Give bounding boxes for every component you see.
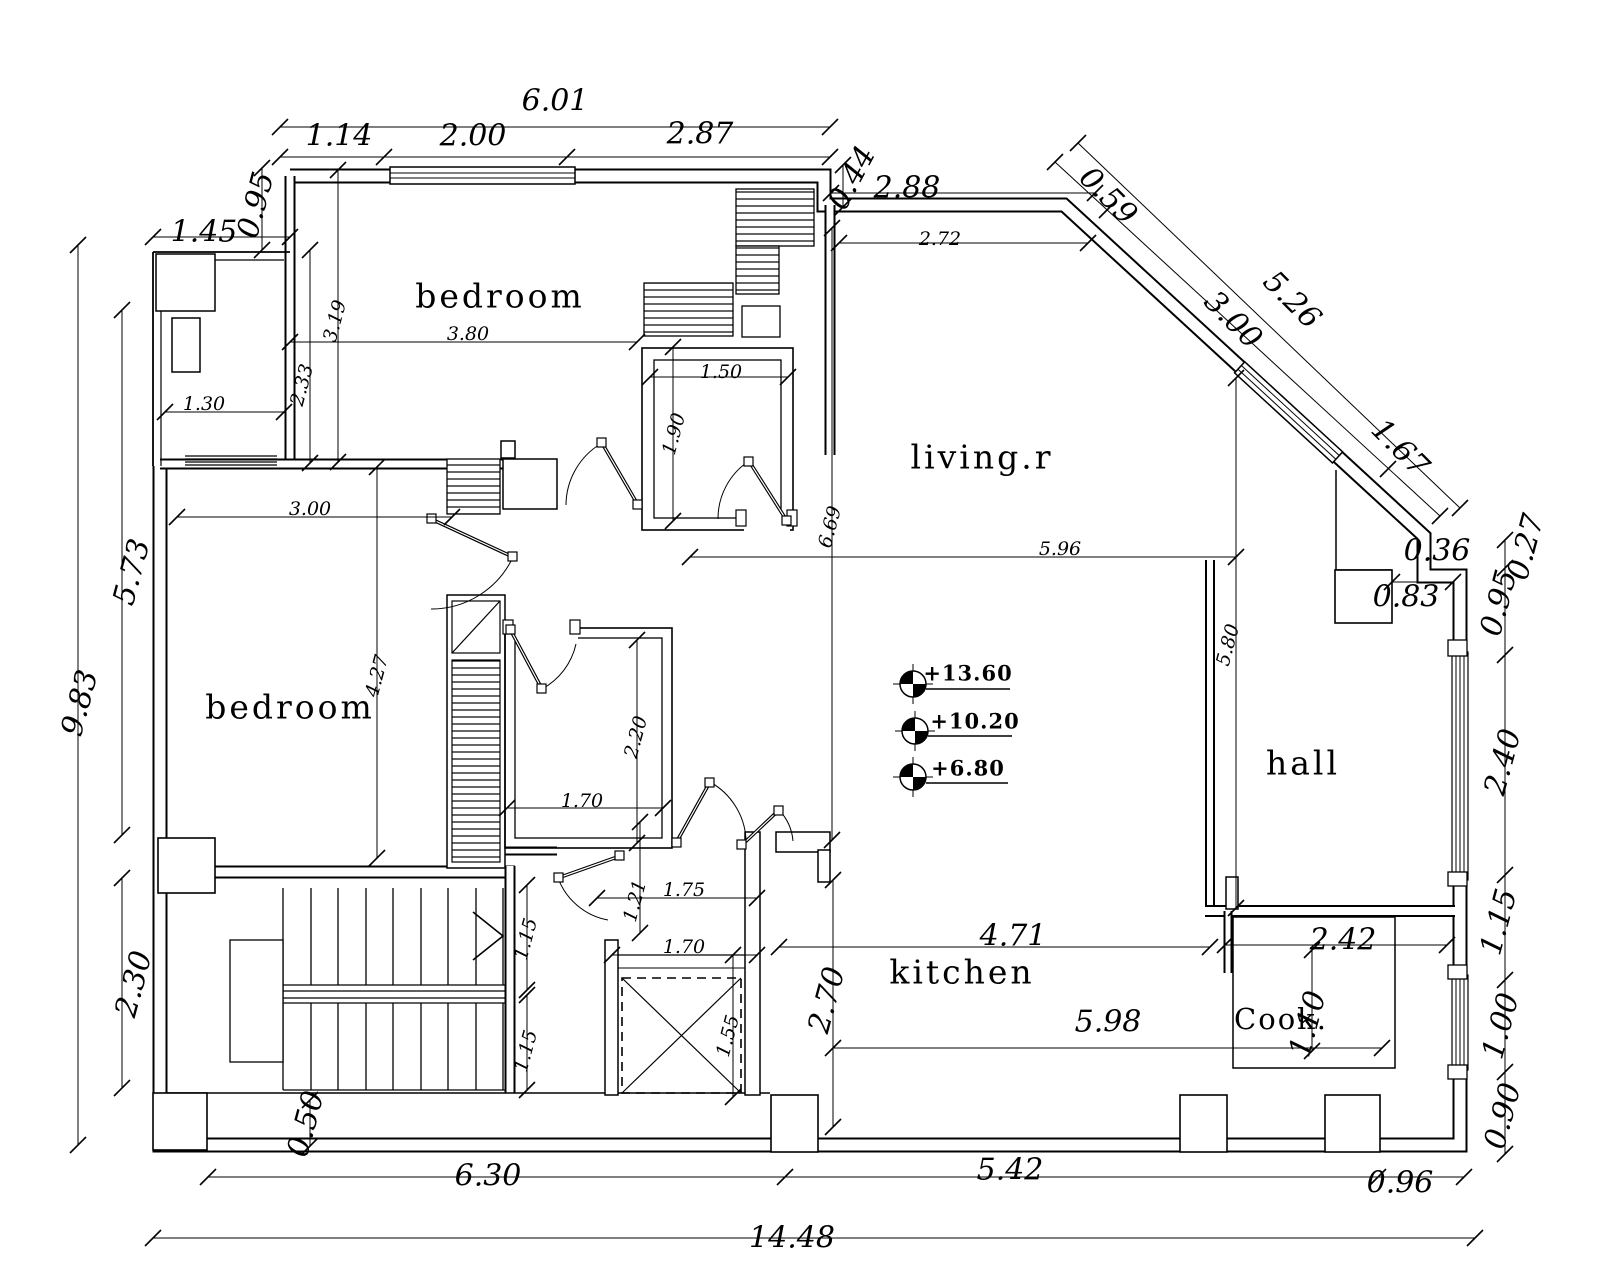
duct-hatch-strip (452, 660, 500, 862)
dim-living-top-inner: 2.72 (919, 228, 961, 250)
door-entrance (554, 851, 624, 920)
window-top (390, 167, 575, 184)
shaft-box (742, 306, 780, 337)
pilaster (1325, 1095, 1380, 1152)
dim-top-total: 6.01 (522, 84, 589, 119)
dim-top-c: 2.87 (667, 117, 734, 152)
dim-living-top: 2.88 (874, 171, 941, 206)
door-bedroom1 (566, 438, 642, 509)
planter-box (172, 318, 200, 372)
vent-block (447, 459, 500, 514)
stair-landing (230, 940, 283, 1062)
shaft-hatch-1 (736, 189, 814, 246)
dim-bottom-542: 5.42 (977, 1153, 1044, 1188)
staircase (230, 888, 505, 1090)
interior-walls (160, 176, 1455, 1093)
window-hall (1448, 640, 1468, 886)
level-label-1: +13.60 (923, 661, 1012, 686)
dim-bottom-630: 6.30 (455, 1159, 522, 1194)
dim-top-a: 1.14 (306, 119, 373, 154)
dim-kitchen-w: 4.71 (980, 919, 1047, 954)
room-label-kitchen: kitchen (889, 953, 1034, 992)
dim-step-083: 0.83 (1373, 580, 1440, 615)
dim-bed2-w: 3.00 (289, 498, 331, 520)
dim-corr-175: 1.75 (663, 879, 705, 901)
dim-balcony-offset: 1.45 (171, 215, 238, 250)
floorplan-linework (0, 0, 1600, 1280)
room-label-bedroom-top: bedroom (415, 277, 585, 316)
elevator (605, 832, 760, 1095)
dim-corr-170: 1.70 (663, 936, 705, 958)
floor-plan: bedroom bedroom living.r hall kitchen Co… (0, 0, 1600, 1280)
pilaster (158, 838, 215, 893)
dim-step-036: 0.36 (1404, 534, 1471, 569)
stair-direction-arrow (473, 912, 503, 960)
dim-wc1-w: 1.50 (700, 361, 742, 383)
dim-top-b: 2.00 (440, 119, 507, 154)
dim-kitchen-total: 5.98 (1075, 1005, 1142, 1040)
room-label-bedroom-left: bedroom (205, 688, 375, 727)
dim-living-w: 5.96 (1039, 538, 1081, 560)
dim-bottom-096: 0.96 (1367, 1166, 1434, 1201)
room-label-hall: hall (1266, 744, 1340, 783)
window-cook (1448, 965, 1468, 1079)
dim-cook-w: 2.42 (1310, 923, 1377, 958)
balcony-closet (156, 254, 215, 311)
shaft-hatch-3 (644, 283, 733, 336)
dim-balc-w: 1.30 (183, 393, 225, 415)
balcony (153, 252, 290, 466)
door-lobby-a (672, 778, 746, 847)
pilaster (153, 1093, 207, 1150)
dim-bottom-total: 14.48 (749, 1221, 835, 1256)
level-label-2: +10.20 (930, 709, 1019, 734)
room-label-living: living.r (911, 438, 1054, 477)
pilaster (1180, 1095, 1227, 1152)
dim-bed1-w: 3.80 (447, 323, 489, 345)
pilaster (771, 1095, 818, 1152)
dim-wc2-w: 1.70 (561, 790, 603, 812)
shaft-hatch-2 (736, 246, 779, 294)
level-label-3: +6.80 (931, 756, 1005, 781)
